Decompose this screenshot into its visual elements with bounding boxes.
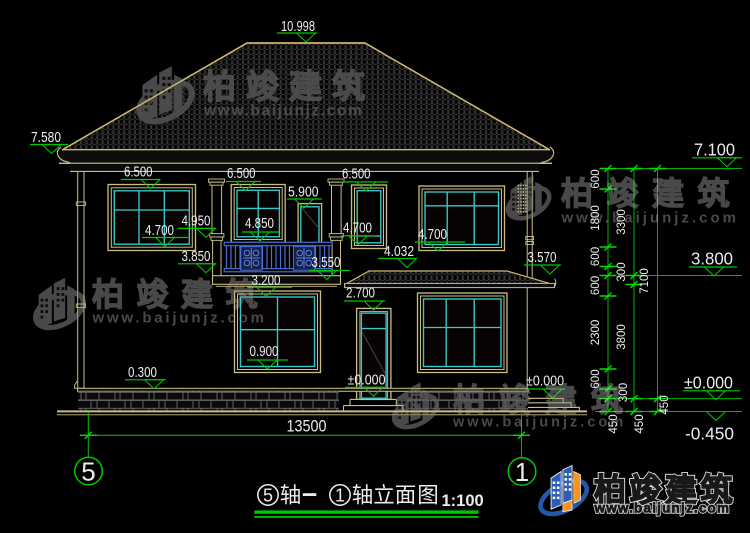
svg-text:600: 600: [590, 247, 602, 266]
svg-text:1: 1: [335, 486, 345, 506]
svg-text:300: 300: [616, 262, 628, 281]
svg-text:6.500: 6.500: [342, 166, 371, 183]
svg-text:3.550: 3.550: [312, 254, 341, 271]
svg-text:4.950: 4.950: [182, 213, 211, 230]
svg-text:轴: 轴: [280, 484, 302, 508]
svg-text:3.800: 3.800: [691, 249, 733, 269]
svg-text:4.700: 4.700: [418, 226, 447, 243]
svg-text:450: 450: [659, 395, 671, 414]
svg-text:5: 5: [81, 457, 95, 487]
svg-text:13500: 13500: [287, 418, 327, 436]
svg-text:±0.000: ±0.000: [684, 373, 733, 393]
svg-text:7.580: 7.580: [31, 129, 61, 146]
svg-text:www.baijunjz.com: www.baijunjz.com: [561, 210, 739, 227]
svg-text:柏竣建筑: 柏竣建筑: [453, 382, 637, 418]
svg-text:4.032: 4.032: [384, 243, 414, 260]
svg-text:立: 立: [373, 484, 395, 508]
svg-text:±0.000: ±0.000: [348, 372, 386, 389]
svg-text:柏竣建筑: 柏竣建筑: [561, 176, 743, 212]
svg-text:3800: 3800: [616, 324, 628, 350]
svg-text:www.baijunjz.com: www.baijunjz.com: [92, 310, 267, 327]
svg-text:4.700: 4.700: [343, 220, 372, 237]
svg-text:4.850: 4.850: [245, 215, 274, 232]
svg-text:6.500: 6.500: [227, 165, 256, 182]
svg-text:www.baijunjz.com: www.baijunjz.com: [203, 103, 363, 120]
svg-text:2.700: 2.700: [346, 285, 375, 302]
svg-text:7100: 7100: [639, 268, 651, 294]
svg-text:面: 面: [395, 484, 417, 508]
svg-text:柏竣建筑: 柏竣建筑: [203, 68, 375, 105]
svg-text:3.570: 3.570: [528, 249, 557, 266]
svg-text:5: 5: [263, 486, 273, 506]
svg-text:2300: 2300: [590, 320, 602, 346]
svg-text:www.baijunjz.com: www.baijunjz.com: [594, 501, 731, 516]
svg-text:-0.450: -0.450: [685, 424, 734, 444]
svg-text:7.100: 7.100: [694, 140, 735, 160]
svg-text:柏竣建筑: 柏竣建筑: [92, 277, 270, 313]
svg-text:1:100: 1:100: [442, 492, 484, 510]
svg-text:www.baijunjz.com: www.baijunjz.com: [452, 415, 626, 431]
svg-text:4.700: 4.700: [145, 222, 174, 239]
svg-text:600: 600: [590, 276, 602, 295]
svg-text:6.500: 6.500: [124, 164, 153, 181]
svg-text:1: 1: [515, 457, 529, 487]
svg-text:0.300: 0.300: [128, 364, 157, 381]
svg-text:0.900: 0.900: [250, 343, 279, 360]
svg-text:5.900: 5.900: [288, 184, 319, 201]
svg-text:图: 图: [417, 484, 439, 508]
svg-text:轴: 轴: [352, 484, 374, 508]
svg-text:3.850: 3.850: [182, 248, 211, 265]
